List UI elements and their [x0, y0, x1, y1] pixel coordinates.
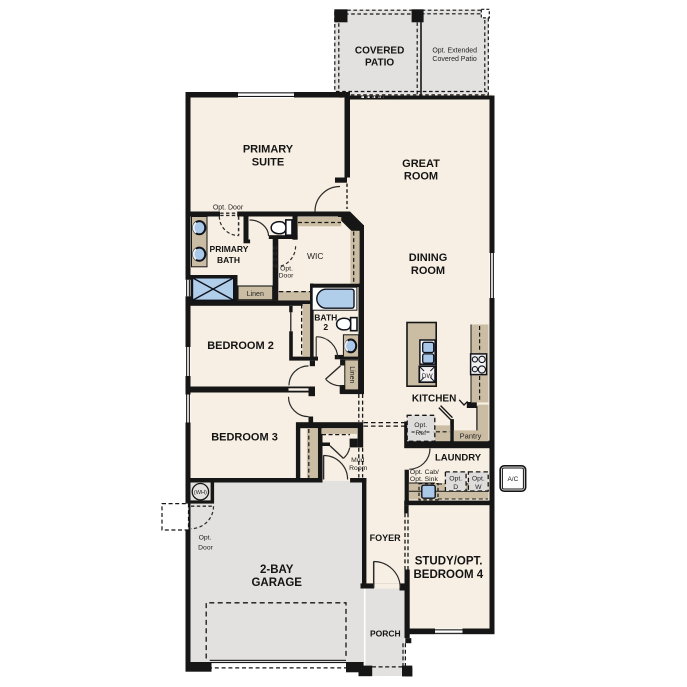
svg-text:BEDROOM 2: BEDROOM 2 [207, 340, 274, 352]
svg-text:BATH: BATH [314, 313, 337, 323]
svg-text:Pantry: Pantry [460, 432, 482, 441]
svg-text:KITCHEN: KITCHEN [412, 393, 456, 404]
svg-text:Opt. Sink: Opt. Sink [410, 476, 439, 483]
svg-text:PATIO: PATIO [365, 58, 394, 69]
svg-text:PRIMARY: PRIMARY [243, 144, 294, 156]
svg-text:(WH): (WH) [194, 490, 207, 496]
svg-text:A/C: A/C [507, 476, 518, 483]
svg-text:Opt.: Opt. [280, 265, 293, 272]
svg-text:GARAGE: GARAGE [251, 577, 302, 589]
svg-text:Opt. Door: Opt. Door [213, 204, 244, 211]
svg-text:DINING: DINING [409, 252, 448, 264]
svg-text:2: 2 [323, 322, 328, 332]
svg-text:ROOM: ROOM [411, 265, 445, 277]
svg-text:Opt. Extended: Opt. Extended [432, 48, 477, 55]
svg-text:PORCH: PORCH [370, 628, 401, 638]
svg-text:DW: DW [422, 373, 434, 380]
svg-text:BEDROOM 4: BEDROOM 4 [413, 569, 483, 581]
svg-text:BEDROOM 3: BEDROOM 3 [211, 432, 278, 444]
svg-text:COVERED: COVERED [355, 46, 404, 57]
svg-text:Ref: Ref [415, 430, 426, 437]
svg-text:Linen: Linen [247, 291, 264, 298]
svg-text:FOYER: FOYER [370, 533, 402, 543]
svg-text:ROOM: ROOM [404, 171, 438, 183]
svg-text:Linen: Linen [348, 366, 355, 383]
svg-text:LAUNDRY: LAUNDRY [435, 453, 482, 464]
svg-text:Door: Door [198, 545, 213, 552]
svg-text:Opt.: Opt. [449, 476, 462, 483]
svg-text:W: W [475, 484, 482, 491]
svg-text:SUITE: SUITE [252, 156, 284, 168]
svg-text:PRIMARY: PRIMARY [210, 244, 249, 254]
svg-text:Door: Door [279, 272, 294, 279]
svg-text:Room: Room [349, 465, 367, 472]
svg-text:BATH: BATH [217, 255, 240, 265]
svg-text:WIC: WIC [307, 251, 324, 261]
svg-text:GREAT: GREAT [402, 158, 440, 170]
svg-text:Mud: Mud [351, 457, 364, 464]
svg-text:Opt.: Opt. [414, 422, 427, 429]
svg-text:Opt. Cab/: Opt. Cab/ [410, 469, 439, 476]
svg-text:STUDY/OPT.: STUDY/OPT. [415, 556, 483, 568]
svg-text:Covered Patio: Covered Patio [432, 56, 476, 63]
svg-text:Opt.: Opt. [472, 476, 485, 483]
svg-text:Opt.: Opt. [199, 535, 212, 542]
svg-text:2-BAY: 2-BAY [260, 564, 294, 576]
svg-text:D: D [453, 484, 458, 491]
